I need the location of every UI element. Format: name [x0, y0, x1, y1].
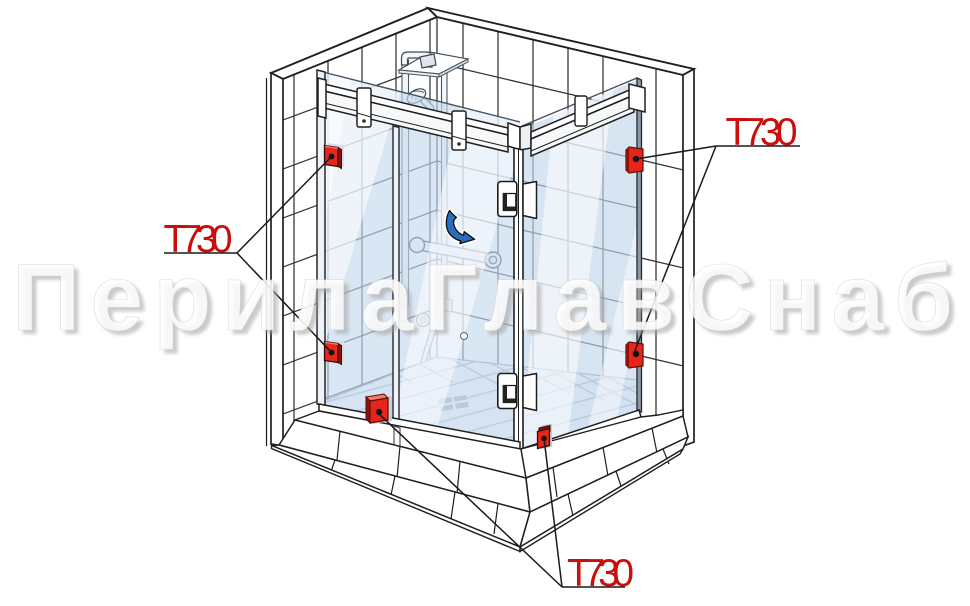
svg-text:Т730: Т730: [567, 552, 634, 595]
svg-text:ПерилаГлавСнаб: ПерилаГлавСнаб: [12, 245, 953, 351]
svg-text:Т730: Т730: [726, 111, 798, 154]
